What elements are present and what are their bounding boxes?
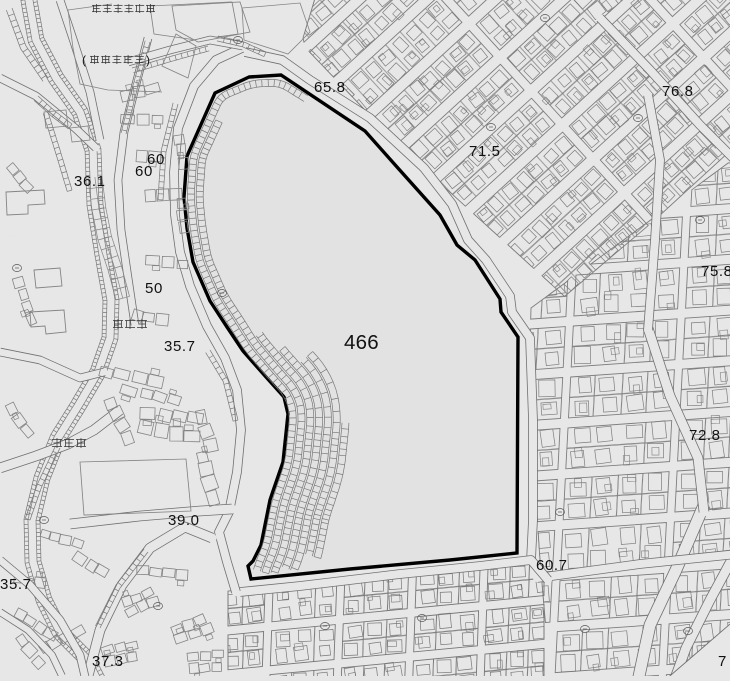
svg-text:39.0: 39.0 xyxy=(168,512,200,529)
svg-text:7: 7 xyxy=(718,653,727,670)
svg-text:466: 466 xyxy=(344,331,379,354)
svg-text:65.8: 65.8 xyxy=(314,79,346,96)
svg-text:71.5: 71.5 xyxy=(469,143,501,160)
svg-text:60.7: 60.7 xyxy=(536,557,568,574)
svg-text:76.8: 76.8 xyxy=(662,83,694,100)
svg-text:72.8: 72.8 xyxy=(689,427,721,444)
svg-text:36.1: 36.1 xyxy=(74,173,106,190)
svg-text:(: ( xyxy=(82,53,86,67)
svg-text:35.7: 35.7 xyxy=(164,338,196,355)
svg-text:): ) xyxy=(146,53,150,67)
svg-text:37.3: 37.3 xyxy=(92,653,124,670)
svg-text:50: 50 xyxy=(145,280,163,297)
svg-text:60: 60 xyxy=(135,163,153,180)
svg-text:75.8: 75.8 xyxy=(701,263,730,280)
svg-text:35.7: 35.7 xyxy=(0,576,32,593)
